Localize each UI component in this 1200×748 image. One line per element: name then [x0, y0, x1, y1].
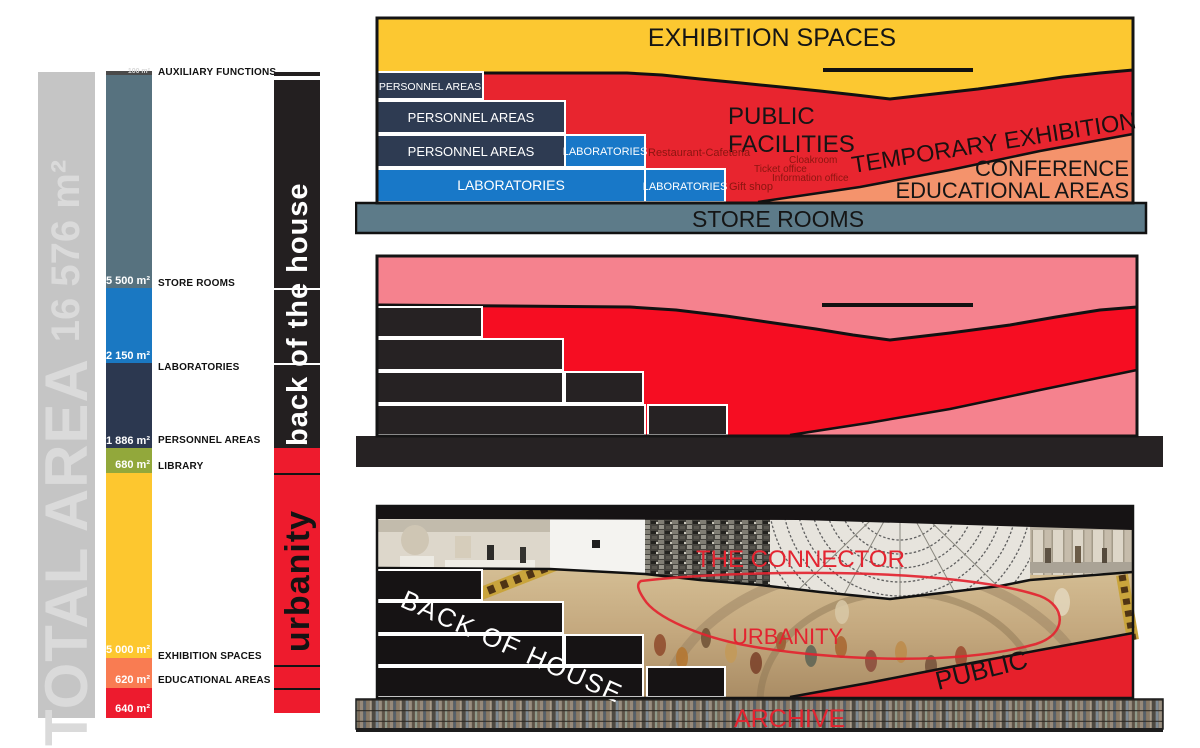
laboratories-label-2: LABORATORIES [457, 177, 565, 193]
section-functional: STORE ROOMS PERSONNEL AREAS PERSONNEL AR… [355, 15, 1150, 235]
value-store-rooms: 5 500 m² [60, 275, 150, 287]
gift-shop-label: Gift shop [729, 181, 773, 193]
massing-base-band [356, 436, 1163, 467]
category-bar-top-strip [274, 72, 320, 76]
segment-exhibition [106, 473, 152, 658]
back-of-house-text: back of the house [277, 84, 319, 446]
laboratories-label-3: LABORATORIES [643, 181, 728, 193]
total-area-label: TOTAL AREA [32, 358, 101, 746]
personnel-label-1: PERSONNEL AREAS [379, 81, 481, 93]
segment-store-rooms [106, 75, 152, 288]
public-facilities-label-1: PUBLIC [728, 103, 815, 130]
urbanity-text: urbanity [277, 452, 319, 710]
section-collage: THE CONNECTOR BACK OF HOUSE URBANITY PUB… [355, 500, 1165, 745]
section-massing [355, 250, 1165, 472]
archive-label: ARCHIVE [734, 705, 845, 733]
total-area-value: 16 576 m² [44, 160, 89, 342]
massing-block [565, 372, 643, 403]
massing-block [377, 307, 482, 337]
value-library: 680 m² [60, 459, 150, 471]
urbanity-label: URBANITY [732, 624, 844, 649]
value-public-red: 640 m² [60, 703, 150, 715]
value-exhibition: 5 000 m² [60, 644, 150, 656]
massing-block [377, 372, 563, 403]
value-laboratories: 2 150 m² [60, 350, 150, 362]
laboratories-label-1: LABORATORIES [563, 146, 648, 158]
store-rooms-band-label: STORE ROOMS [692, 206, 864, 232]
personnel-label-2: PERSONNEL AREAS [408, 110, 535, 125]
massing-block [648, 405, 727, 435]
restaurant-label: Restaurant-Cafeteria [648, 147, 751, 159]
program-diagram-canvas: TOTAL AREA 16 576 m² 100 m² 5 500 m² 2 1… [0, 0, 1200, 748]
exhibition-spaces-label: EXHIBITION SPACES [648, 24, 896, 52]
value-educational: 620 m² [60, 674, 150, 686]
value-personnel: 1 886 m² [60, 435, 150, 447]
massing-block [377, 405, 645, 435]
boh-block [647, 667, 725, 697]
personnel-label-3: PERSONNEL AREAS [408, 144, 535, 159]
total-area-text: TOTAL AREA 16 576 m² [37, 32, 95, 746]
value-auxiliary: 100 m² [60, 68, 150, 75]
connector-label: THE CONNECTOR [696, 546, 905, 573]
massing-block [377, 339, 563, 370]
information-office-label: Information office [772, 173, 849, 184]
educational-areas-label: EDUCATIONAL AREAS [895, 178, 1129, 203]
